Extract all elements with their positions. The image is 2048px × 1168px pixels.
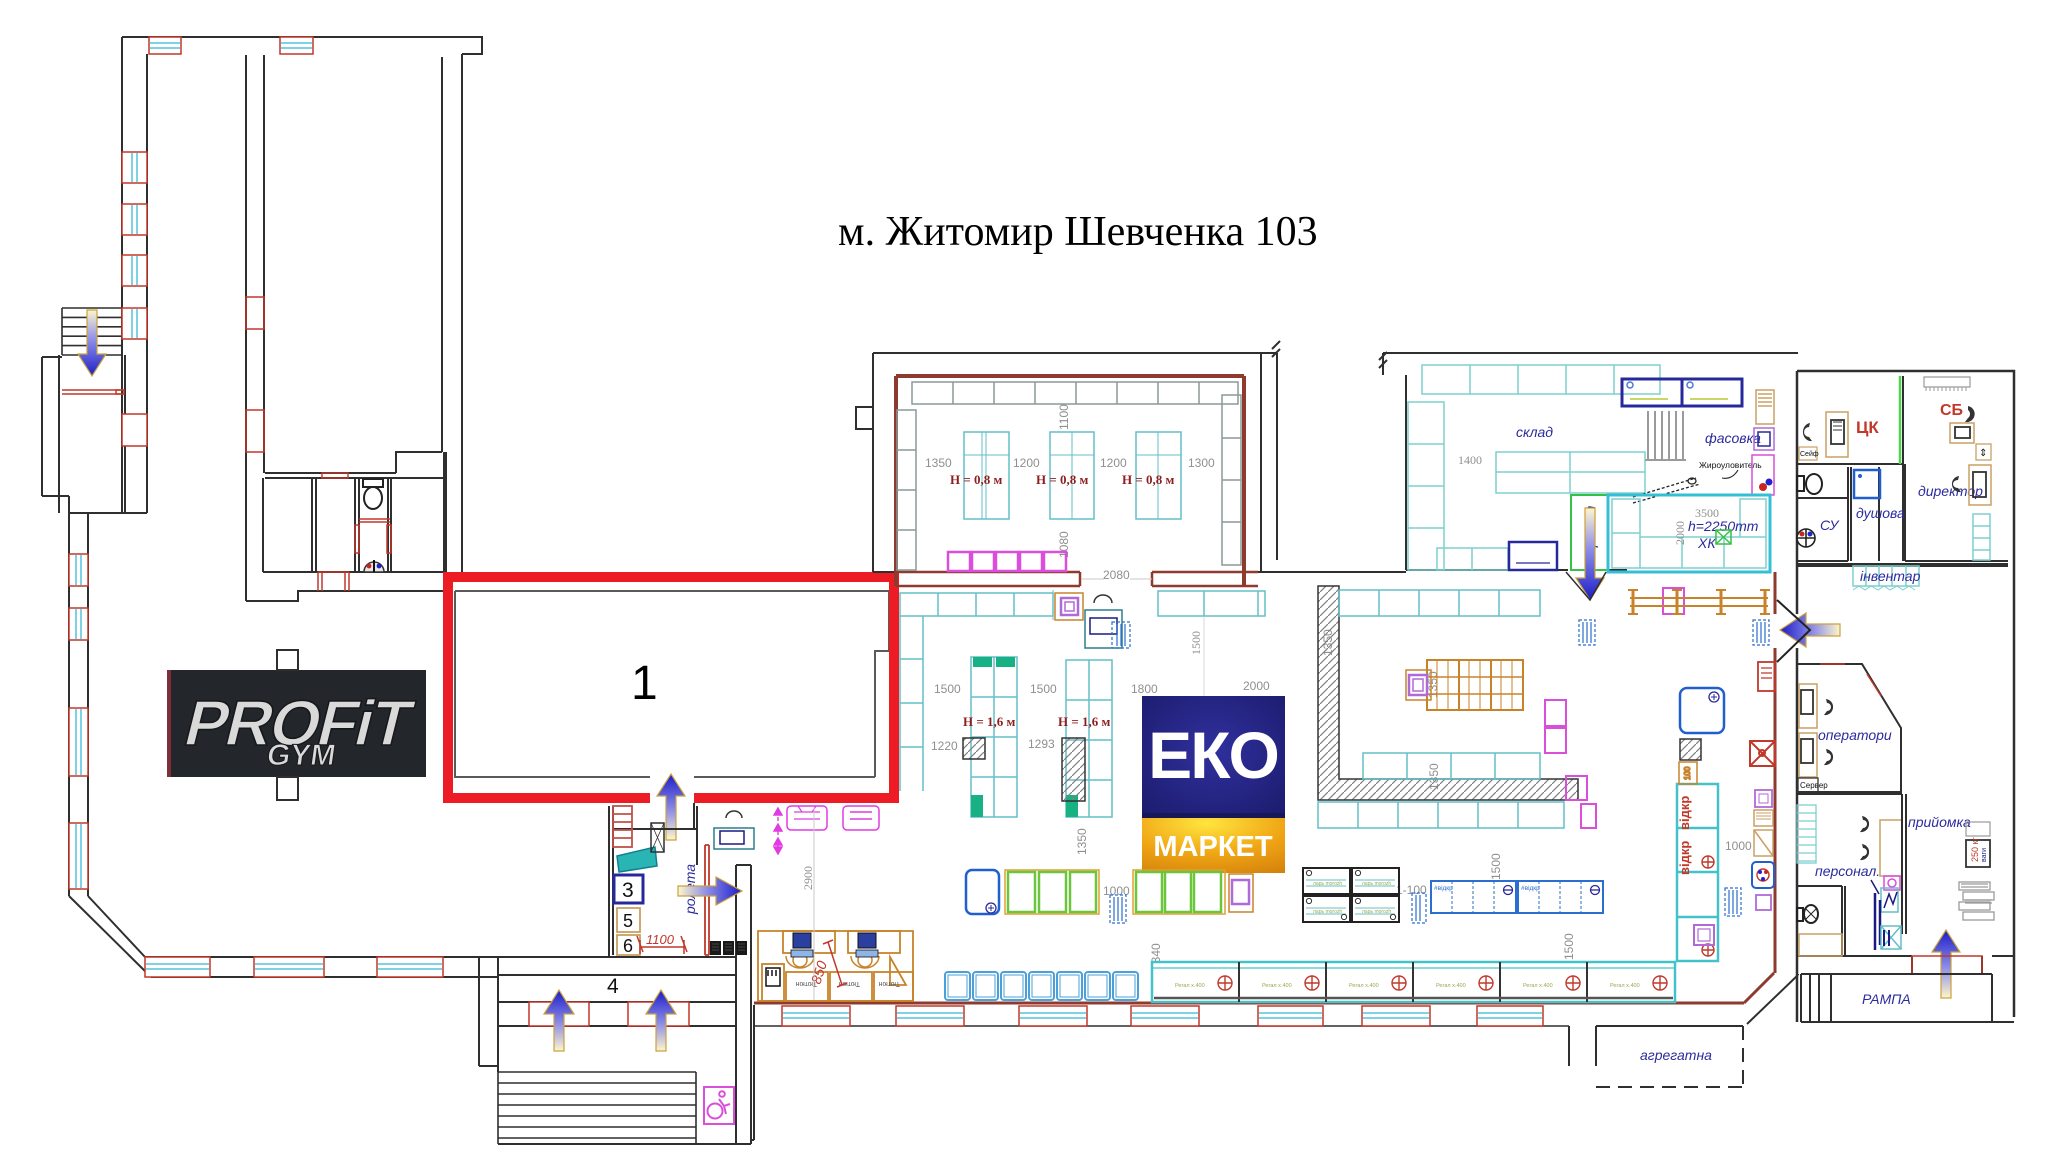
svg-text:5: 5 (623, 911, 633, 931)
svg-text:Регал х.400: Регал х.400 (1610, 983, 1640, 989)
svg-text:#відкр: #відкр (1434, 884, 1453, 892)
svg-text:3: 3 (622, 879, 634, 902)
svg-text:1300: 1300 (1188, 456, 1215, 470)
svg-text:склад: склад (1516, 424, 1553, 440)
svg-text:Сервер: Сервер (1800, 781, 1828, 790)
svg-text:Сейф: Сейф (1800, 450, 1819, 458)
svg-text:відкр: відкр (1677, 796, 1692, 830)
svg-text:ларь morozh: ларь morozh (1313, 881, 1342, 887)
svg-text:Регал х.400: Регал х.400 (1349, 983, 1379, 989)
svg-text:1293: 1293 (1028, 737, 1055, 751)
svg-text:GYM: GYM (265, 739, 338, 772)
svg-text:1200: 1200 (1100, 456, 1127, 470)
svg-text:⇕: ⇕ (1979, 448, 1987, 459)
svg-text:відкр: відкр (1677, 841, 1692, 875)
svg-text:1500: 1500 (1189, 631, 1203, 655)
svg-text:1400: 1400 (1458, 453, 1482, 467)
svg-text:інвентар: інвентар (1860, 568, 1921, 584)
svg-text:1500: 1500 (1562, 933, 1576, 960)
svg-text:Н = 1,6 м: Н = 1,6 м (1058, 714, 1111, 729)
svg-text:1080: 1080 (1057, 531, 1071, 558)
svg-text:h=2250mm: h=2250mm (1688, 518, 1759, 534)
svg-text:2000: 2000 (1243, 679, 1270, 693)
svg-text:РАМПА: РАМПА (1862, 991, 1911, 1007)
svg-text:СБ: СБ (1940, 402, 1963, 419)
svg-text:МАРКЕТ: МАРКЕТ (1153, 831, 1272, 863)
svg-text:Регал х.400: Регал х.400 (1436, 983, 1466, 989)
svg-text:1500: 1500 (1030, 682, 1057, 696)
svg-text:2080: 2080 (1103, 568, 1130, 582)
svg-text:СУ: СУ (1820, 517, 1840, 533)
svg-text:1500: 1500 (1489, 853, 1503, 880)
svg-text:фасовка: фасовка (1705, 430, 1761, 446)
svg-text:ваги: ваги (1981, 848, 1988, 862)
svg-text:Н = 0,8 м: Н = 0,8 м (950, 472, 1003, 487)
svg-text:1200: 1200 (1013, 456, 1040, 470)
svg-text:Регал х.400: Регал х.400 (1175, 983, 1205, 989)
svg-text:1000: 1000 (1725, 839, 1752, 853)
svg-text:1100: 1100 (1057, 404, 1071, 430)
svg-text:ларь morozh: ларь morozh (1313, 909, 1342, 915)
svg-text:ларь morozh: ларь morozh (1362, 881, 1391, 887)
svg-text:ЦК: ЦК (1856, 418, 1879, 437)
svg-text:Тютюн: Тютюн (878, 980, 900, 987)
svg-text:6: 6 (623, 936, 633, 956)
svg-text:250 кг: 250 кг (1970, 837, 1980, 862)
svg-text:оператори: оператори (1818, 727, 1892, 743)
svg-text:1350: 1350 (925, 456, 952, 470)
svg-text:ЕКО: ЕКО (1148, 718, 1278, 792)
svg-text:ХК: ХК (1697, 535, 1716, 551)
svg-text:Н = 1,6 м: Н = 1,6 м (963, 714, 1016, 729)
svg-text:1800: 1800 (1131, 682, 1158, 696)
svg-text:#відкр: #відкр (1521, 884, 1540, 892)
svg-text:персонал.: персонал. (1815, 863, 1880, 879)
svg-text:Н = 0,8 м: Н = 0,8 м (1122, 472, 1175, 487)
svg-text:2000: 2000 (1673, 521, 1687, 545)
svg-text:1350: 1350 (1075, 828, 1089, 855)
svg-text:1220: 1220 (931, 739, 958, 753)
svg-text:ларь morozh: ларь morozh (1362, 909, 1391, 915)
svg-text:агрегатна: агрегатна (1640, 1047, 1712, 1063)
svg-text:прийомка: прийомка (1908, 814, 1971, 830)
svg-text:душова: душова (1856, 505, 1905, 521)
svg-text:1100: 1100 (646, 932, 675, 947)
svg-text:100: 100 (1683, 766, 1692, 780)
svg-text:Регал х.400: Регал х.400 (1523, 983, 1553, 989)
svg-text:4: 4 (607, 975, 619, 998)
svg-text:1: 1 (631, 657, 658, 710)
svg-text:2900: 2900 (801, 866, 815, 890)
svg-text:Регал х.400: Регал х.400 (1262, 983, 1292, 989)
svg-text:м. Житомир Шевченка 103: м. Житомир Шевченка 103 (838, 209, 1318, 255)
svg-text:Н = 0,8 м: Н = 0,8 м (1036, 472, 1089, 487)
svg-text:1500: 1500 (934, 682, 961, 696)
svg-text:Жироуловитель: Жироуловитель (1699, 460, 1762, 470)
